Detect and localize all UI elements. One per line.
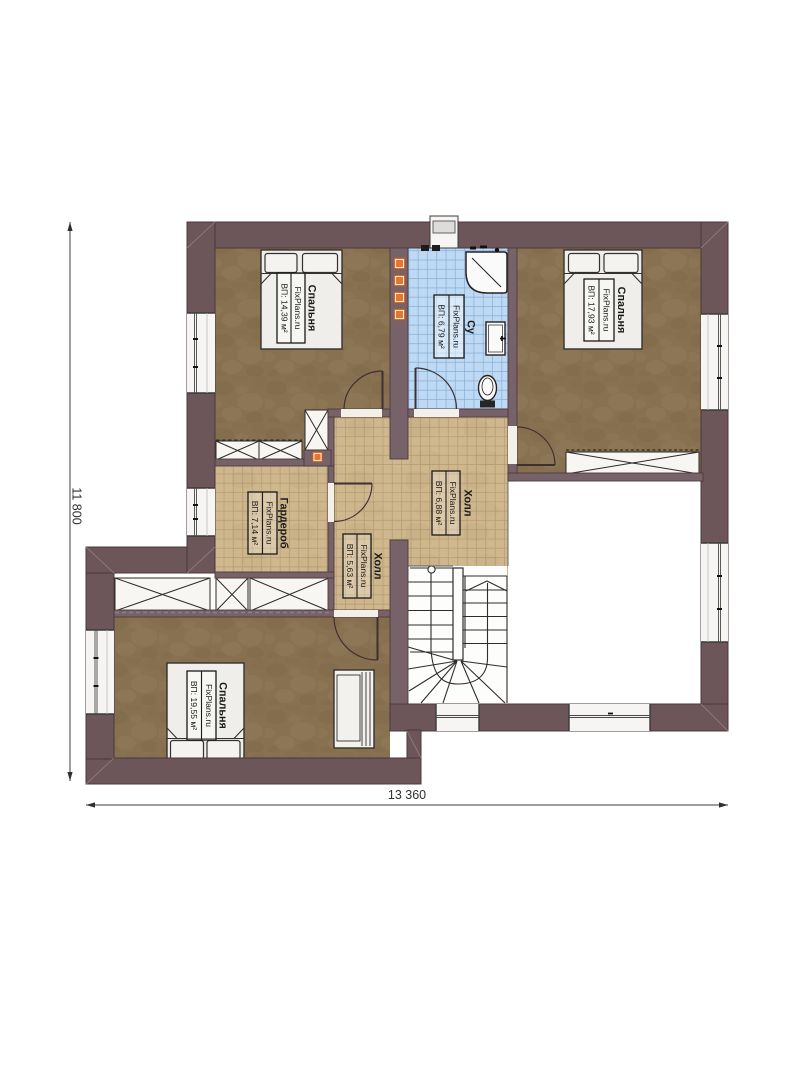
svg-text:ВП: 5,63 м²: ВП: 5,63 м² — [345, 544, 355, 589]
svg-text:13 360: 13 360 — [388, 788, 426, 802]
svg-text:FixPlans.ru: FixPlans.ru — [293, 287, 303, 330]
svg-text:FixPlans.ru: FixPlans.ru — [204, 684, 214, 727]
svg-text:ВП: 6,79 м²: ВП: 6,79 м² — [437, 304, 447, 349]
svg-text:ВП: 14,39 м²: ВП: 14,39 м² — [280, 283, 290, 332]
svg-text:ВП: 6,88 м²: ВП: 6,88 м² — [434, 481, 444, 526]
svg-text:Су: Су — [465, 320, 477, 334]
svg-text:Спальня: Спальня — [217, 682, 229, 729]
svg-text:Спальня: Спальня — [306, 285, 318, 332]
svg-text:ВП: 7,14 м²: ВП: 7,14 м² — [250, 501, 260, 546]
svg-text:FixPlans.ru: FixPlans.ru — [448, 482, 458, 525]
svg-text:Спальня: Спальня — [615, 287, 627, 334]
svg-text:FixPlans.ru: FixPlans.ru — [265, 502, 275, 545]
svg-text:11 800: 11 800 — [70, 487, 84, 524]
svg-text:FixPlans.ru: FixPlans.ru — [359, 545, 369, 588]
svg-text:Холл: Холл — [372, 552, 384, 579]
svg-text:ВП: 17,93 м²: ВП: 17,93 м² — [587, 285, 597, 334]
svg-text:Гардероб: Гардероб — [278, 497, 290, 548]
svg-text:FixPlans.ru: FixPlans.ru — [602, 289, 612, 332]
svg-text:FixPlans.ru: FixPlans.ru — [452, 305, 462, 348]
svg-text:Холл: Холл — [462, 489, 474, 516]
svg-text:ВП: 19,55 м²: ВП: 19,55 м² — [189, 681, 199, 730]
